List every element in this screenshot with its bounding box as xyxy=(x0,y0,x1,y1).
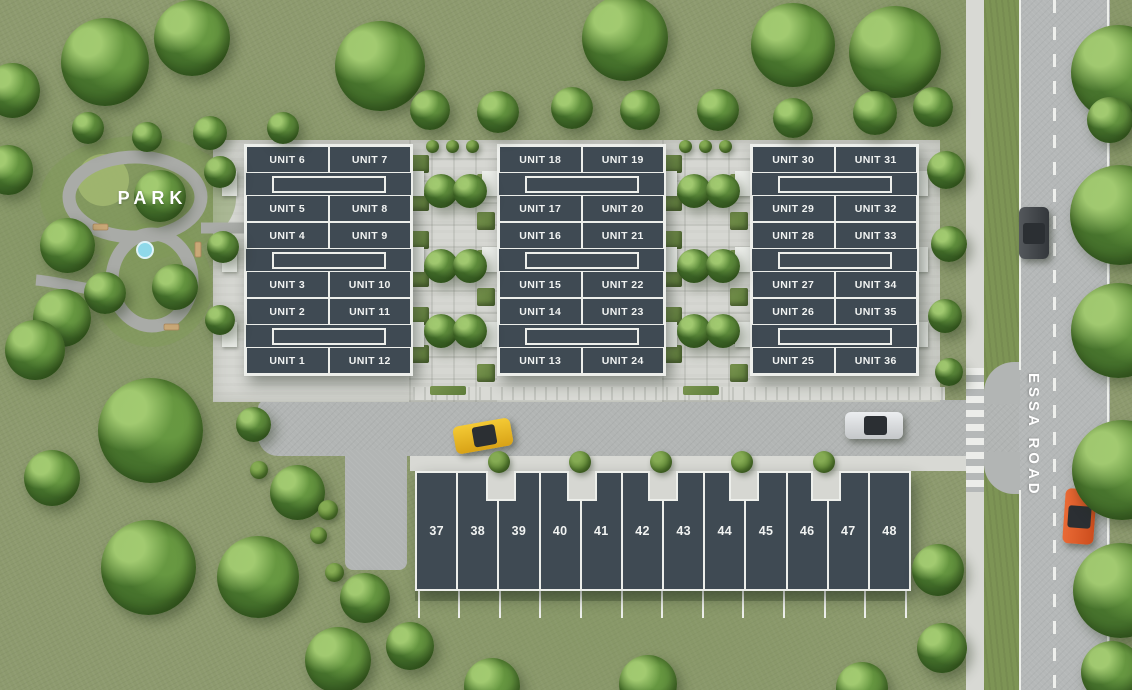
roof-detail xyxy=(525,328,639,345)
roof-band xyxy=(246,249,411,271)
hedge xyxy=(430,386,466,395)
unit-cell: UNIT 21 xyxy=(582,222,665,249)
entry-notch xyxy=(648,471,678,501)
tree xyxy=(24,450,80,506)
tree xyxy=(236,407,271,442)
pedestrian-crosswalk xyxy=(966,368,984,492)
bush xyxy=(426,140,439,153)
unit-cell: UNIT 22 xyxy=(582,271,665,298)
fence-line xyxy=(661,587,663,618)
fence-line xyxy=(783,587,785,618)
tree xyxy=(154,0,230,76)
entry-notch xyxy=(729,471,759,501)
tree xyxy=(72,112,104,144)
tree xyxy=(849,6,941,98)
tree xyxy=(98,378,203,483)
tree xyxy=(706,249,740,283)
unit-cell: UNIT 26 xyxy=(752,298,835,325)
tree xyxy=(751,3,835,87)
tree xyxy=(0,145,33,195)
bench xyxy=(93,224,108,230)
unit-cell: UNIT 14 xyxy=(499,298,582,325)
unit-cell: UNIT 31 xyxy=(835,146,918,173)
tree xyxy=(305,627,371,690)
hedge-planter xyxy=(730,288,748,306)
tree xyxy=(773,98,813,138)
fence-line xyxy=(499,587,501,618)
tree xyxy=(270,465,325,520)
bush xyxy=(466,140,479,153)
building-block-2: UNIT 18UNIT 19 UNIT 17UNIT 20 UNIT 16UNI… xyxy=(497,144,666,376)
unit-cell: UNIT 12 xyxy=(329,347,412,374)
tree xyxy=(697,89,739,131)
bush xyxy=(569,451,591,473)
bush xyxy=(310,527,327,544)
unit-cell: UNIT 27 xyxy=(752,271,835,298)
tree xyxy=(620,90,660,130)
unit-cell: UNIT 29 xyxy=(752,195,835,222)
unit-cell: UNIT 34 xyxy=(835,271,918,298)
fence-line xyxy=(418,587,420,618)
roof-band xyxy=(499,325,664,347)
unit-cell: UNIT 36 xyxy=(835,347,918,374)
tree xyxy=(84,272,126,314)
hedge-planter xyxy=(477,212,495,230)
roof-detail xyxy=(778,176,892,193)
tree xyxy=(453,249,487,283)
site-plan-canvas: PARK UNIT 6UNIT 7 UNIT 5UNIT 8 UNIT 4UNI… xyxy=(0,0,1132,690)
sidewalk xyxy=(966,0,984,370)
tree xyxy=(453,314,487,348)
entry-notch xyxy=(811,471,841,501)
bush xyxy=(318,500,338,520)
unit-cell: UNIT 30 xyxy=(752,146,835,173)
tree xyxy=(410,90,450,130)
fence-line xyxy=(742,587,744,618)
rear-lane-driveway xyxy=(345,450,407,570)
tree xyxy=(453,174,487,208)
roof-band xyxy=(752,325,917,347)
unit-cell: UNIT 16 xyxy=(499,222,582,249)
unit-cell: UNIT 28 xyxy=(752,222,835,249)
unit-cell: UNIT 33 xyxy=(835,222,918,249)
tree xyxy=(267,112,299,144)
bush xyxy=(719,140,732,153)
internal-road xyxy=(258,400,1019,456)
unit-cell: UNIT 20 xyxy=(582,195,665,222)
fence-line xyxy=(580,587,582,618)
tree xyxy=(61,18,149,106)
tree xyxy=(619,655,677,690)
roof-detail xyxy=(778,252,892,269)
fence-line xyxy=(539,587,541,618)
roof-detail xyxy=(272,328,386,345)
tree xyxy=(582,0,668,81)
bush xyxy=(813,451,835,473)
unit-cell: UNIT 19 xyxy=(582,146,665,173)
entry-notch xyxy=(567,471,597,501)
bush xyxy=(446,140,459,153)
bush xyxy=(488,451,510,473)
unit-cell: UNIT 6 xyxy=(246,146,329,173)
bench xyxy=(164,324,179,330)
building-block-1: UNIT 6UNIT 7 UNIT 5UNIT 8 UNIT 4UNIT 9 U… xyxy=(244,144,413,376)
unit-cell: UNIT 24 xyxy=(582,347,665,374)
unit-cell: UNIT 35 xyxy=(835,298,918,325)
bush xyxy=(250,461,268,479)
curb-line xyxy=(1019,0,1021,370)
tree xyxy=(207,231,239,263)
tree xyxy=(464,658,520,690)
tree xyxy=(551,87,593,129)
tree xyxy=(913,87,953,127)
tree xyxy=(928,299,962,333)
car-windshield xyxy=(864,416,887,436)
roof-detail xyxy=(525,176,639,193)
hedge-planter xyxy=(730,212,748,230)
roof-detail xyxy=(272,252,386,269)
bush xyxy=(650,451,672,473)
car-windshield xyxy=(1023,223,1045,245)
tree xyxy=(193,116,227,150)
fence-line xyxy=(824,587,826,618)
tree xyxy=(706,314,740,348)
car-windshield xyxy=(471,424,497,448)
hedge-planter xyxy=(664,345,682,363)
tree xyxy=(927,151,965,189)
unit-cell: UNIT 17 xyxy=(499,195,582,222)
curb-line xyxy=(1019,490,1021,690)
silver-car xyxy=(845,412,903,439)
fence-line xyxy=(702,587,704,618)
tree xyxy=(204,156,236,188)
park-label: PARK xyxy=(105,188,200,209)
pond xyxy=(137,242,153,258)
roof-band xyxy=(499,249,664,271)
fence-line xyxy=(458,587,460,618)
roof-band xyxy=(499,173,664,195)
bench xyxy=(195,242,201,257)
tree xyxy=(386,622,434,670)
unit-cell: UNIT 13 xyxy=(499,347,582,374)
tree xyxy=(5,320,65,380)
unit-cell: UNIT 15 xyxy=(499,271,582,298)
roof-detail xyxy=(525,252,639,269)
hedge-planter xyxy=(730,364,748,382)
entry-notch xyxy=(486,471,516,501)
tree xyxy=(935,358,963,386)
unit-cell: UNIT 23 xyxy=(582,298,665,325)
tree xyxy=(335,21,425,111)
essa-road-label: ESSA ROAD xyxy=(1024,373,1042,493)
roof-band xyxy=(246,325,411,347)
tree xyxy=(477,91,519,133)
tree xyxy=(912,544,964,596)
tree xyxy=(40,218,95,273)
building-block-3: UNIT 30UNIT 31 UNIT 29UNIT 32 UNIT 28UNI… xyxy=(750,144,919,376)
tree xyxy=(931,226,967,262)
unit-cell: UNIT 9 xyxy=(329,222,412,249)
fence-line xyxy=(621,587,623,618)
hedge xyxy=(683,386,719,395)
road-verge xyxy=(983,0,1019,690)
unit-cell: UNIT 7 xyxy=(329,146,412,173)
unit-cell: UNIT 8 xyxy=(329,195,412,222)
tree xyxy=(917,623,967,673)
bush xyxy=(679,140,692,153)
unit-cell: UNIT 2 xyxy=(246,298,329,325)
dark-car xyxy=(1019,207,1049,259)
tree xyxy=(217,536,299,618)
roof-detail xyxy=(778,328,892,345)
bush xyxy=(325,563,344,582)
roof-band xyxy=(752,173,917,195)
tree xyxy=(836,662,888,690)
roof-band xyxy=(246,173,411,195)
tree xyxy=(132,122,162,152)
unit-cell: UNIT 1 xyxy=(246,347,329,374)
unit-cell: UNIT 18 xyxy=(499,146,582,173)
fence-line xyxy=(864,587,866,618)
hedge-planter xyxy=(477,288,495,306)
unit-cell: UNIT 4 xyxy=(246,222,329,249)
unit-cell: UNIT 3 xyxy=(246,271,329,298)
tree xyxy=(340,573,390,623)
tree xyxy=(152,264,198,310)
tree xyxy=(0,63,40,118)
bush xyxy=(731,451,753,473)
sidewalk xyxy=(966,490,984,690)
hedge-planter xyxy=(477,364,495,382)
unit-cell: UNIT 5 xyxy=(246,195,329,222)
tree xyxy=(1087,97,1132,143)
unit-cell: UNIT 25 xyxy=(752,347,835,374)
fence-line xyxy=(905,587,907,618)
unit-cell: UNIT 10 xyxy=(329,271,412,298)
unit-cell: UNIT 11 xyxy=(329,298,412,325)
hedge-planter xyxy=(411,345,429,363)
roof-detail xyxy=(272,176,386,193)
unit-cell: 48 xyxy=(870,473,909,589)
car-windshield xyxy=(1067,505,1091,529)
unit-cell: 37 xyxy=(417,473,458,589)
tree xyxy=(706,174,740,208)
unit-cell: UNIT 32 xyxy=(835,195,918,222)
roof-band xyxy=(752,249,917,271)
tree xyxy=(853,91,897,135)
bush xyxy=(699,140,712,153)
road-centerline xyxy=(1053,0,1056,690)
tree xyxy=(205,305,235,335)
tree xyxy=(101,520,196,615)
